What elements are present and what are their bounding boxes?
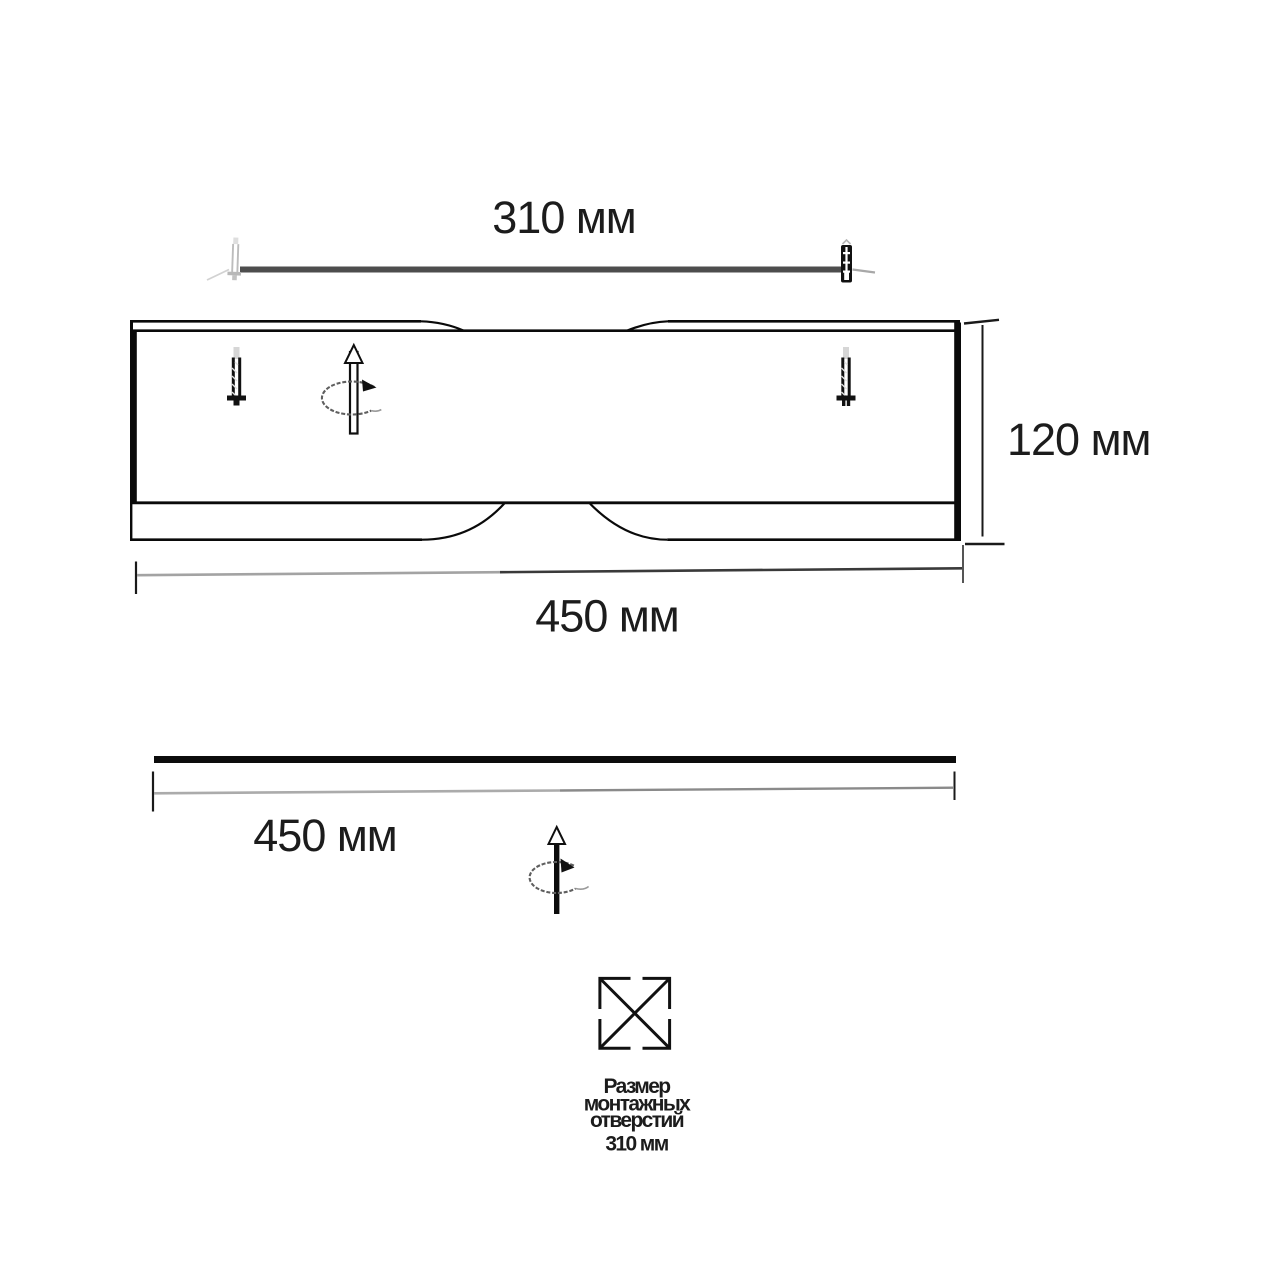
svg-text:310 мм: 310 мм [492,192,635,243]
svg-text:450 мм: 450 мм [535,591,678,642]
svg-text:120 мм: 120 мм [1007,414,1150,465]
svg-text:отверстий: отверстий [590,1109,684,1132]
svg-text:450 мм: 450 мм [253,810,396,861]
svg-text:310 мм: 310 мм [605,1133,668,1156]
